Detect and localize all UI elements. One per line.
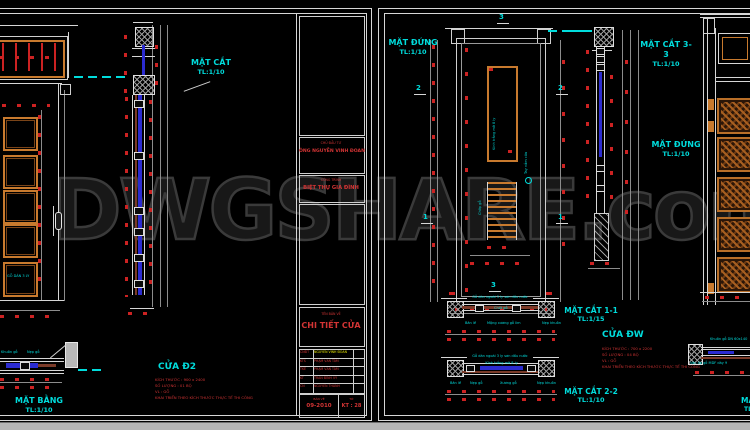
- staff-role: KTS: [300, 359, 314, 368]
- elevation-frame: [58, 83, 59, 301]
- carved-panel: [717, 137, 750, 172]
- door-panel: [3, 224, 38, 258]
- titleblock-empty-box: [299, 204, 365, 305]
- line: [700, 14, 750, 15]
- sheet-number: KT : 28: [339, 403, 364, 409]
- door-panel: [3, 155, 38, 189]
- sheet-border: [0, 8, 372, 9]
- elevation-top: [0, 83, 62, 84]
- staff-cell: [354, 359, 364, 368]
- marker-number: 3: [499, 13, 504, 21]
- project-label: CÔNG TRÌNH: [299, 178, 363, 182]
- dwgshare-watermark: DWGSHARE.com: [52, 168, 750, 252]
- door-note: SỐ LƯỢNG : 01 BỘ: [155, 383, 192, 388]
- dim-line: [693, 375, 750, 376]
- titleblock-divider: [296, 13, 297, 416]
- dim-mark: [508, 150, 512, 153]
- callout: Mộng xương gỗ lim: [487, 321, 521, 325]
- dim-ticks: [38, 115, 41, 295]
- project-name: BIỆT THỰ GIA ĐÌNH: [299, 185, 363, 191]
- sheet-border: [371, 8, 372, 421]
- date-value: 09-2010: [300, 403, 338, 409]
- door-note: VL : GỖ: [602, 358, 616, 363]
- dim-mark: [546, 292, 552, 295]
- callout: Gỗ dán ngoài 3 ly sơn dầu nước: [463, 354, 537, 358]
- line: [68, 32, 69, 78]
- label-scale: TL:1/10: [650, 150, 702, 158]
- callout: Xương gỗ: [500, 381, 517, 385]
- dim-ticks: [447, 338, 555, 341]
- staff-name: TRẦN ĐÌNH VỸ: [314, 376, 354, 385]
- carved-panel: [717, 217, 750, 252]
- door-note: KÍCH THƯỚC : 900 x 2400: [155, 377, 205, 382]
- sheet-border: [378, 8, 750, 9]
- dim-ticks: [0, 56, 60, 59]
- dim-line: [470, 255, 530, 256]
- carved-panel: [717, 98, 750, 134]
- dim-line: [445, 334, 557, 335]
- staff-name: NGUYỄN THÀNH: [314, 384, 354, 393]
- marker-flag: [414, 94, 426, 95]
- staff-name: PHẠM VĂN TÂM: [314, 367, 354, 376]
- dim-line: [0, 310, 60, 311]
- date-cell: BẢN VẼ 09-2010: [300, 395, 339, 417]
- line: [701, 349, 750, 350]
- hinge-clip: [134, 207, 144, 215]
- plan-view-label: MẶT BẰNG TL:1/10: [10, 396, 68, 414]
- clip: [466, 365, 475, 372]
- door-panel: [3, 262, 38, 297]
- clip: [512, 305, 521, 312]
- handle-plate: [53, 206, 54, 236]
- dim-ticks: [0, 315, 58, 318]
- hinge-clip: [134, 152, 144, 160]
- dim-line: [622, 30, 623, 300]
- door-leaf-section: [142, 45, 145, 75]
- dim-ticks: [586, 50, 589, 210]
- rung-clip: [596, 165, 605, 172]
- dim-ticks: [432, 45, 435, 295]
- dim-line: [588, 268, 620, 269]
- callout: Kính trắng mờ 8 ly: [480, 361, 523, 365]
- label-scale: TL:1/10: [388, 48, 438, 56]
- jamb-line: [703, 18, 704, 305]
- door-title: CỬA Đ2: [158, 362, 196, 372]
- dim-line: [702, 301, 750, 302]
- dim-ticks: [447, 390, 555, 393]
- staff-name: PHẠM VĂN TÂM: [314, 359, 354, 368]
- door-swing: [50, 345, 66, 359]
- hinge-clip: [134, 100, 144, 108]
- staff-name: NGUYỄN VĨNH ĐOAN: [314, 350, 354, 359]
- rung-clip: [596, 48, 605, 55]
- staff-role: KT: [300, 376, 314, 385]
- section-marker-1: 1: [556, 213, 568, 225]
- elevation2-view-label: MẶT ĐỨNG TL:1/10: [650, 140, 702, 158]
- line: [133, 22, 153, 23]
- door-leaf-section: [599, 72, 602, 157]
- dim-ticks: [470, 262, 530, 265]
- drawing-name: CHI TIẾT CỬA: [299, 321, 363, 330]
- callout: Chốt gỗ: [494, 306, 508, 310]
- dim-line: [160, 25, 161, 307]
- bottom-strip: [0, 423, 750, 430]
- rung-clip: [596, 56, 605, 63]
- owner-name: ÔNG NGUYỄN VINH ĐOAN: [299, 149, 363, 154]
- section-marker-3: 3: [489, 281, 501, 293]
- jamb-section: [538, 360, 555, 377]
- dim-ticks: [447, 398, 555, 401]
- dim-ticks: [0, 386, 60, 389]
- label-scale: TL:1/10: [182, 68, 240, 76]
- dim-line: [450, 313, 550, 314]
- sheet-border: [384, 13, 385, 416]
- dim-ticks: [610, 75, 613, 205]
- staff-role: CNĐT: [300, 350, 314, 359]
- dim-ticks: [465, 48, 468, 293]
- carved-panel: [717, 177, 750, 212]
- marker-number: 2: [558, 84, 563, 92]
- dim-line: [445, 394, 557, 395]
- marker-flag: [489, 291, 501, 292]
- line: [716, 77, 750, 78]
- line: [701, 355, 750, 356]
- jamb-section: [65, 342, 78, 368]
- section-view-label: MẶT CẮT TL:1/10: [182, 58, 240, 76]
- dim-ticks: [149, 100, 152, 295]
- dim-ticks: [128, 312, 154, 315]
- callout: Nẹp gỗ: [470, 381, 482, 385]
- dim-line: [0, 382, 62, 383]
- wood-section: [701, 357, 750, 359]
- leader-line: [184, 81, 211, 92]
- door-note: KÍCH THƯỚC : 700 x 2200: [602, 346, 652, 351]
- glass-panel-note: Kính trắng mờ 8 ly: [492, 74, 496, 150]
- label-scale: TL:1/10: [10, 406, 68, 414]
- section-marker-2: 2: [414, 84, 426, 96]
- dim-ticks: [590, 262, 618, 265]
- dim-ticks: [155, 45, 158, 85]
- section22-view-label: MẶT CẮT 2-2 TL:1/10: [562, 387, 620, 405]
- dim-ticks: [625, 60, 628, 240]
- marker-flag: [497, 23, 509, 24]
- hinge: [708, 99, 714, 110]
- titleblock-footer: BẢN VẼ 09-2010 TỜ KT : 28: [299, 394, 365, 418]
- staff-role: CN: [300, 384, 314, 393]
- staff-cell: [354, 367, 364, 376]
- drawing-label: TÊN BẢN VẼ: [299, 312, 363, 316]
- plan-line: [0, 370, 64, 371]
- dim-line: [152, 25, 153, 307]
- dim-line: [638, 30, 639, 300]
- dim-line: [560, 40, 561, 302]
- titleblock-staff-table: CNĐT NGUYỄN VĨNH ĐOAN KTS PHẠM VĂN TÂM T…: [299, 349, 365, 394]
- staff-cell: [354, 376, 364, 385]
- callout: Gỗ dán ngoài 3 ly sơn dầu nước: [463, 295, 537, 299]
- door-panel: [3, 117, 38, 151]
- owner-label: CHỦ ĐẦU TƯ: [299, 141, 363, 145]
- dim-line: [41, 110, 42, 300]
- jamb-section: [538, 301, 555, 318]
- sheet-border: [384, 13, 750, 14]
- rung-clip: [596, 185, 605, 192]
- clip: [475, 305, 484, 312]
- plan-line: [0, 358, 64, 359]
- label-title: MẶT BẰNG: [10, 396, 68, 406]
- titleblock-logo-box: [299, 16, 365, 136]
- dim-line: [167, 25, 168, 307]
- marker-number: 2: [416, 84, 421, 92]
- marker-flag: [421, 223, 433, 224]
- clip: [20, 362, 30, 370]
- plan-line: [0, 361, 64, 362]
- panel-note: GỖ DÁN 3 LY: [7, 274, 29, 278]
- hinge-clip: [134, 254, 144, 262]
- glass-section: [708, 351, 734, 354]
- hinge-clip: [134, 228, 144, 236]
- lintel-section: [135, 27, 154, 47]
- wood-edge: [135, 95, 137, 295]
- callout: Khuôn gỗ DN 60x140: [710, 337, 747, 341]
- door-note: KHAI TRIỂN THEO KÍCH THƯỚC THỰC TẾ THI C…: [602, 364, 700, 369]
- callout: Nẹp khuôn: [537, 381, 556, 385]
- plan-callout: Khuôn gỗ: [1, 350, 18, 354]
- louver-panel: [487, 182, 517, 240]
- door-handle: [55, 212, 62, 230]
- line: [716, 81, 750, 82]
- masonry-section: [594, 213, 609, 261]
- line: [130, 308, 154, 309]
- dim-ticks: [705, 296, 750, 299]
- line: [132, 95, 133, 295]
- label-title: MẶT ĐỨNG: [650, 140, 702, 150]
- callout: Nẹp khuôn: [542, 321, 561, 325]
- staff-cell: [354, 384, 364, 393]
- line: [701, 347, 750, 348]
- plan-line: [0, 373, 64, 374]
- dim-ticks: [0, 378, 60, 381]
- dim-ticks: [487, 246, 515, 249]
- sheet-border: [378, 8, 379, 421]
- dim-ticks: [124, 35, 127, 95]
- door-note: KHAI TRIỂN THEO KÍCH THƯỚC THỰC TẾ THI C…: [155, 395, 253, 400]
- label-title: MẶT ĐỨNG: [388, 38, 438, 48]
- staff-cell: [354, 350, 364, 359]
- centerline: [570, 30, 592, 32]
- dim-ticks: [125, 97, 128, 297]
- sheet-border: [0, 13, 366, 14]
- dim-mark: [489, 68, 493, 71]
- cut-view-scale: TL: [744, 406, 750, 413]
- dim-line: [430, 40, 431, 302]
- label-scale: TL:1/10: [638, 60, 694, 68]
- frame-corner: [703, 18, 715, 34]
- section-marker-2: 2: [556, 84, 568, 96]
- line: [462, 304, 538, 305]
- sheet-border: [384, 415, 750, 416]
- frame-section: [133, 75, 155, 95]
- marker-flag: [556, 94, 568, 95]
- marker-number: 1: [423, 213, 428, 221]
- centerline: [78, 369, 102, 371]
- dim-ticks: [447, 330, 555, 333]
- hinge: [708, 121, 714, 132]
- handle-circle: [525, 177, 532, 184]
- door-leaf-section: [138, 95, 142, 295]
- elevation-frame: [64, 90, 65, 301]
- carved-panel: [717, 257, 750, 293]
- label-title: MẶT CẮT 1-1: [562, 306, 620, 315]
- marker-number: 1: [558, 213, 563, 221]
- door-title: CỬA ĐW: [602, 330, 644, 340]
- door-top-panel: [718, 33, 750, 64]
- label-scale: TL:1/15: [562, 315, 620, 323]
- label-title: MẶT CẮT: [182, 58, 240, 68]
- line: [0, 25, 78, 26]
- marker-number: 3: [491, 281, 496, 289]
- door-note: SỐ LƯỢNG : 04 BỘ: [602, 352, 639, 357]
- callout: Bản lề: [450, 381, 461, 385]
- cad-screenshot: { "watermark": "DWGSHARE.com", "left_she…: [0, 0, 750, 430]
- line: [462, 310, 538, 311]
- louver-note: Chớp gỗ: [478, 160, 482, 215]
- label-title: MẶT CẮT 3-3: [638, 40, 694, 60]
- jamb-line: [715, 28, 716, 305]
- label-title: MẶT CẮT 2-2: [562, 387, 620, 396]
- wood-section: [38, 364, 56, 367]
- door-panel: [3, 190, 38, 224]
- rung-clip: [596, 64, 605, 71]
- clip: [527, 365, 536, 372]
- handle-note: Tay nắm cửa: [524, 138, 528, 174]
- sheet-border: [366, 13, 367, 416]
- dim-line: [437, 40, 438, 302]
- marker-flag: [556, 223, 568, 224]
- sheet-border: [378, 420, 750, 421]
- elevation-bottom: [0, 300, 64, 301]
- sheet-no-cell: TỜ KT : 28: [339, 395, 364, 417]
- line: [462, 374, 538, 375]
- glass-section: [480, 366, 523, 370]
- callout: Ván ốp gỗ MDF dày 9: [690, 361, 727, 365]
- jamb-line: [707, 18, 708, 305]
- frame-corner: [60, 84, 71, 95]
- dim-mark: [449, 292, 455, 295]
- centerline: [74, 76, 128, 78]
- section33-view-label: MẶT CẮT 3-3 TL:1/10: [638, 40, 694, 68]
- elevation-view-label: MẶT ĐỨNG TL:1/10: [388, 38, 438, 56]
- sheet-label: TỜ: [339, 397, 364, 401]
- section-marker-3: 3: [497, 13, 509, 25]
- dim-ticks: [695, 371, 750, 374]
- lintel-section: [594, 27, 614, 47]
- door-note: VL : GỖ: [155, 389, 169, 394]
- plan-callout: Nẹp gỗ: [27, 350, 39, 354]
- hinge-clip: [134, 280, 144, 288]
- cut-view-label: MẶT: [741, 396, 750, 405]
- sheet-border: [0, 420, 372, 421]
- section11-view-label: MẶT CẮT 1-1 TL:1/15: [562, 306, 620, 324]
- staff-role: TKẾ: [300, 367, 314, 376]
- section-marker-1: 1: [421, 213, 433, 225]
- line: [700, 292, 750, 293]
- dim-ticks: [2, 104, 50, 107]
- dim-line: [630, 30, 631, 300]
- label-scale: TL:1/10: [562, 396, 620, 404]
- date-label: BẢN VẼ: [300, 397, 338, 401]
- callout: Bản lề: [465, 321, 476, 325]
- line: [144, 95, 145, 295]
